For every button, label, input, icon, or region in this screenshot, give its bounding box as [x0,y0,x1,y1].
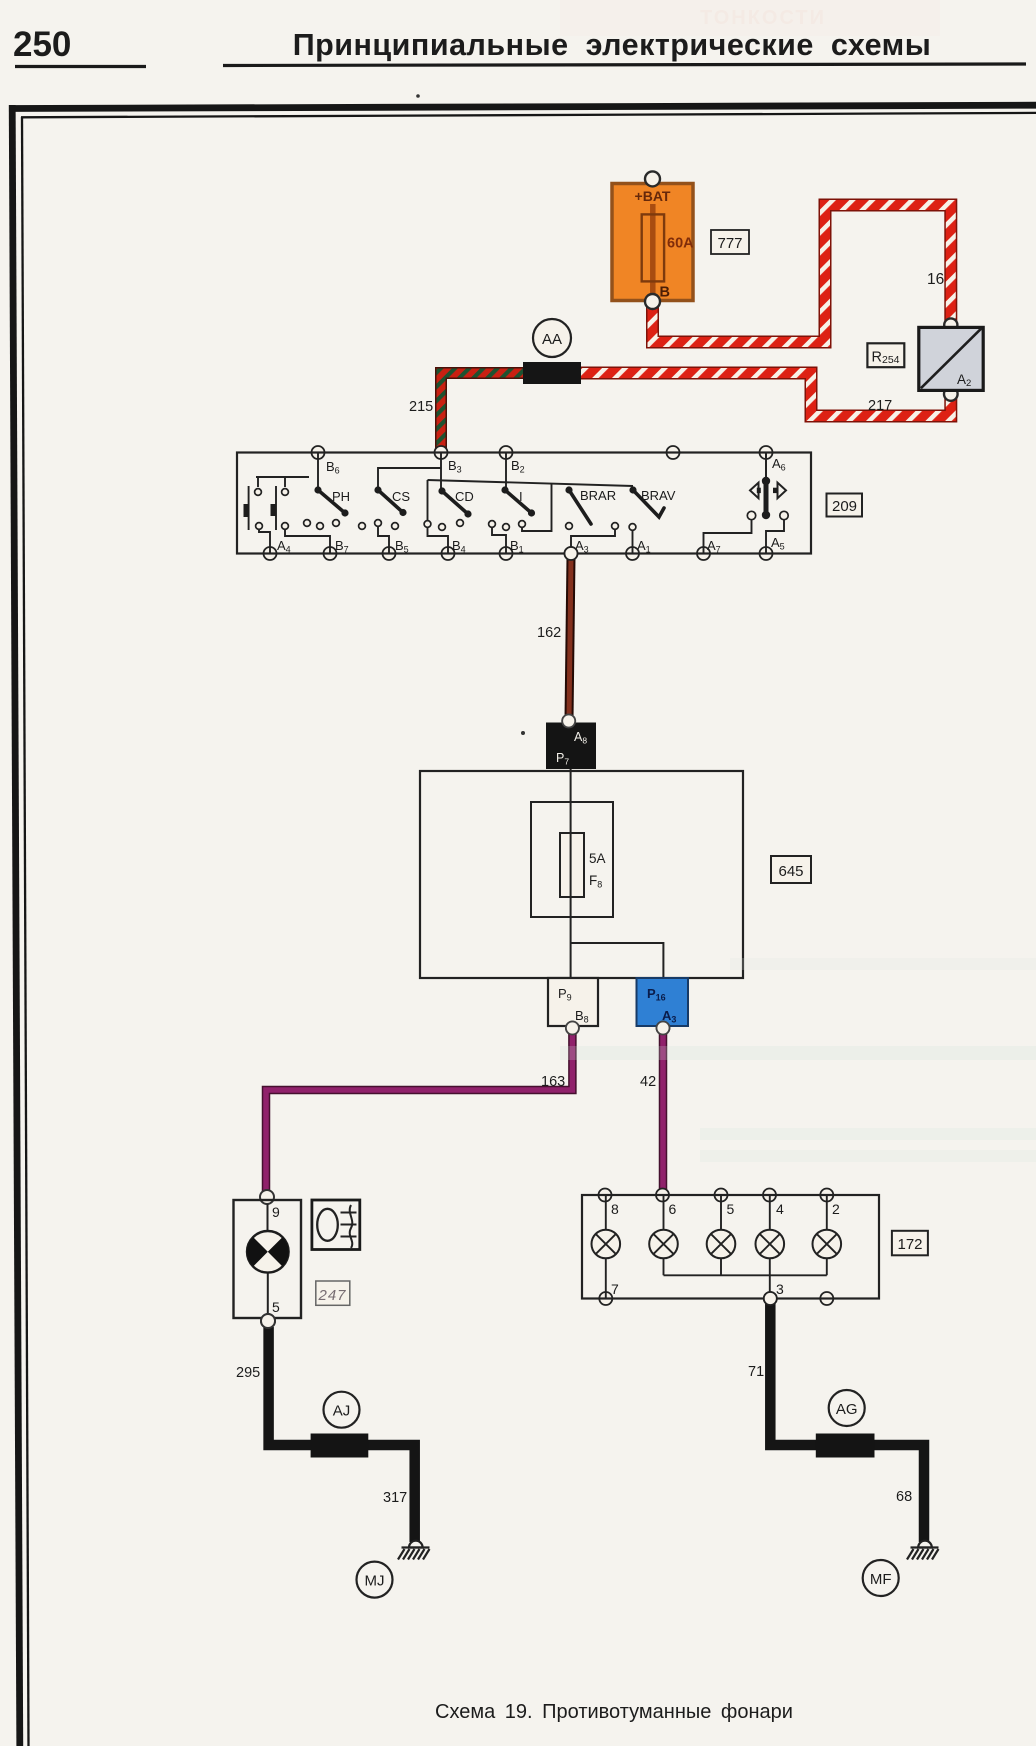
svg-text:295: 295 [236,1365,260,1381]
svg-text:163: 163 [541,1074,565,1090]
svg-text:250: 250 [13,25,71,64]
svg-text:68: 68 [896,1489,912,1505]
svg-text:5: 5 [272,1299,280,1315]
svg-text:645: 645 [778,863,803,880]
svg-text:3: 3 [776,1281,784,1297]
svg-text:42: 42 [640,1074,656,1090]
svg-text:BRAR: BRAR [580,488,616,503]
svg-text:I: I [519,489,523,504]
svg-text:PH: PH [332,489,350,504]
svg-text:5A: 5A [589,851,606,866]
svg-text:71: 71 [748,1364,764,1380]
svg-text:AJ: AJ [333,1403,351,1420]
svg-text:Принципиальные электрические с: Принципиальные электрические схемы [293,28,932,62]
svg-text:247: 247 [317,1287,346,1304]
svg-text:6: 6 [669,1201,677,1217]
svg-text:9: 9 [272,1204,280,1220]
svg-text:16: 16 [927,271,944,288]
svg-text:AA: AA [542,331,562,348]
svg-text:215: 215 [409,399,433,415]
svg-text:5: 5 [727,1201,735,1217]
svg-text:217: 217 [868,398,892,414]
svg-text:+BAT: +BAT [635,188,671,204]
svg-text:CS: CS [392,489,410,504]
svg-text:ТОНКОСТИ: ТОНКОСТИ [700,7,826,29]
svg-text:7: 7 [611,1281,619,1297]
svg-text:Схема 19. Противотуманные фона: Схема 19. Противотуманные фонари [435,1701,793,1723]
svg-text:209: 209 [832,498,857,515]
svg-text:MJ: MJ [365,1573,385,1590]
svg-text:8: 8 [611,1201,619,1217]
svg-text:BRAV: BRAV [641,488,676,503]
svg-text:777: 777 [717,235,742,252]
svg-text:2: 2 [832,1201,840,1217]
svg-text:B: B [660,285,670,301]
svg-text:60A: 60A [667,236,694,252]
svg-text:CD: CD [455,489,474,504]
svg-text:4: 4 [776,1201,784,1217]
svg-text:162: 162 [537,625,561,641]
svg-text:172: 172 [897,1236,922,1253]
svg-text:317: 317 [383,1490,407,1506]
svg-text:MF: MF [870,1571,892,1588]
svg-text:AG: AG [836,1401,858,1418]
